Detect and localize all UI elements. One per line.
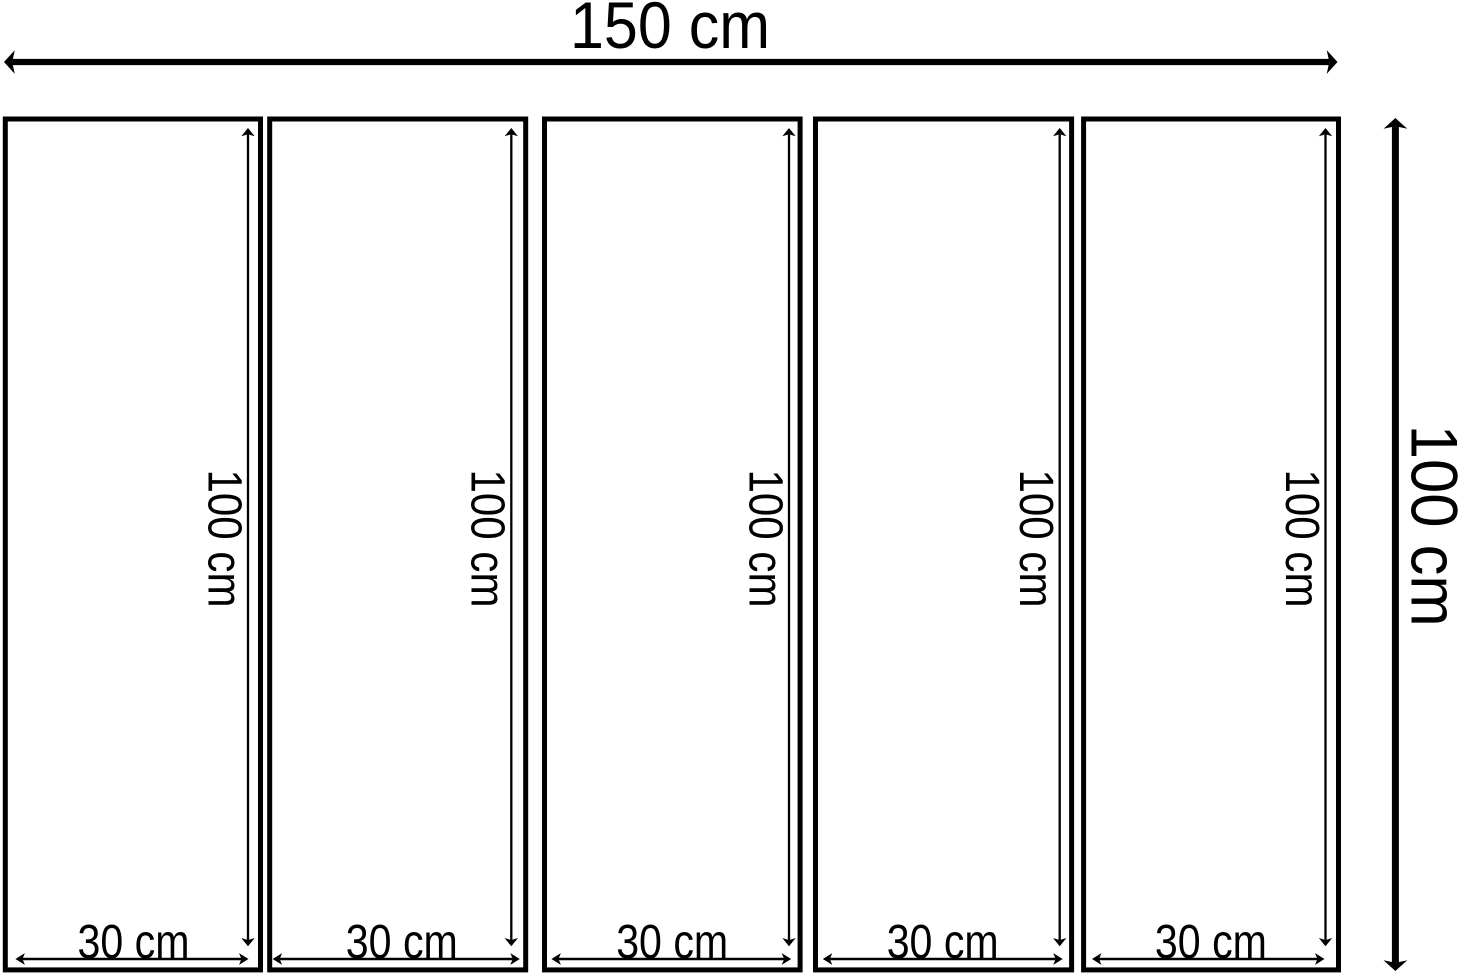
svg-text:30 cm: 30 cm [78,916,190,969]
svg-text:30 cm: 30 cm [616,916,728,969]
svg-text:150 cm: 150 cm [570,0,770,62]
svg-text:30 cm: 30 cm [346,916,458,969]
svg-text:30 cm: 30 cm [887,916,999,969]
svg-text:100 cm: 100 cm [1009,470,1062,608]
svg-text:100 cm: 100 cm [1275,470,1328,608]
svg-text:100 cm: 100 cm [1398,425,1461,627]
svg-text:100 cm: 100 cm [197,470,250,608]
svg-text:100 cm: 100 cm [738,470,791,608]
svg-text:100 cm: 100 cm [461,470,514,608]
svg-text:30 cm: 30 cm [1155,916,1267,969]
